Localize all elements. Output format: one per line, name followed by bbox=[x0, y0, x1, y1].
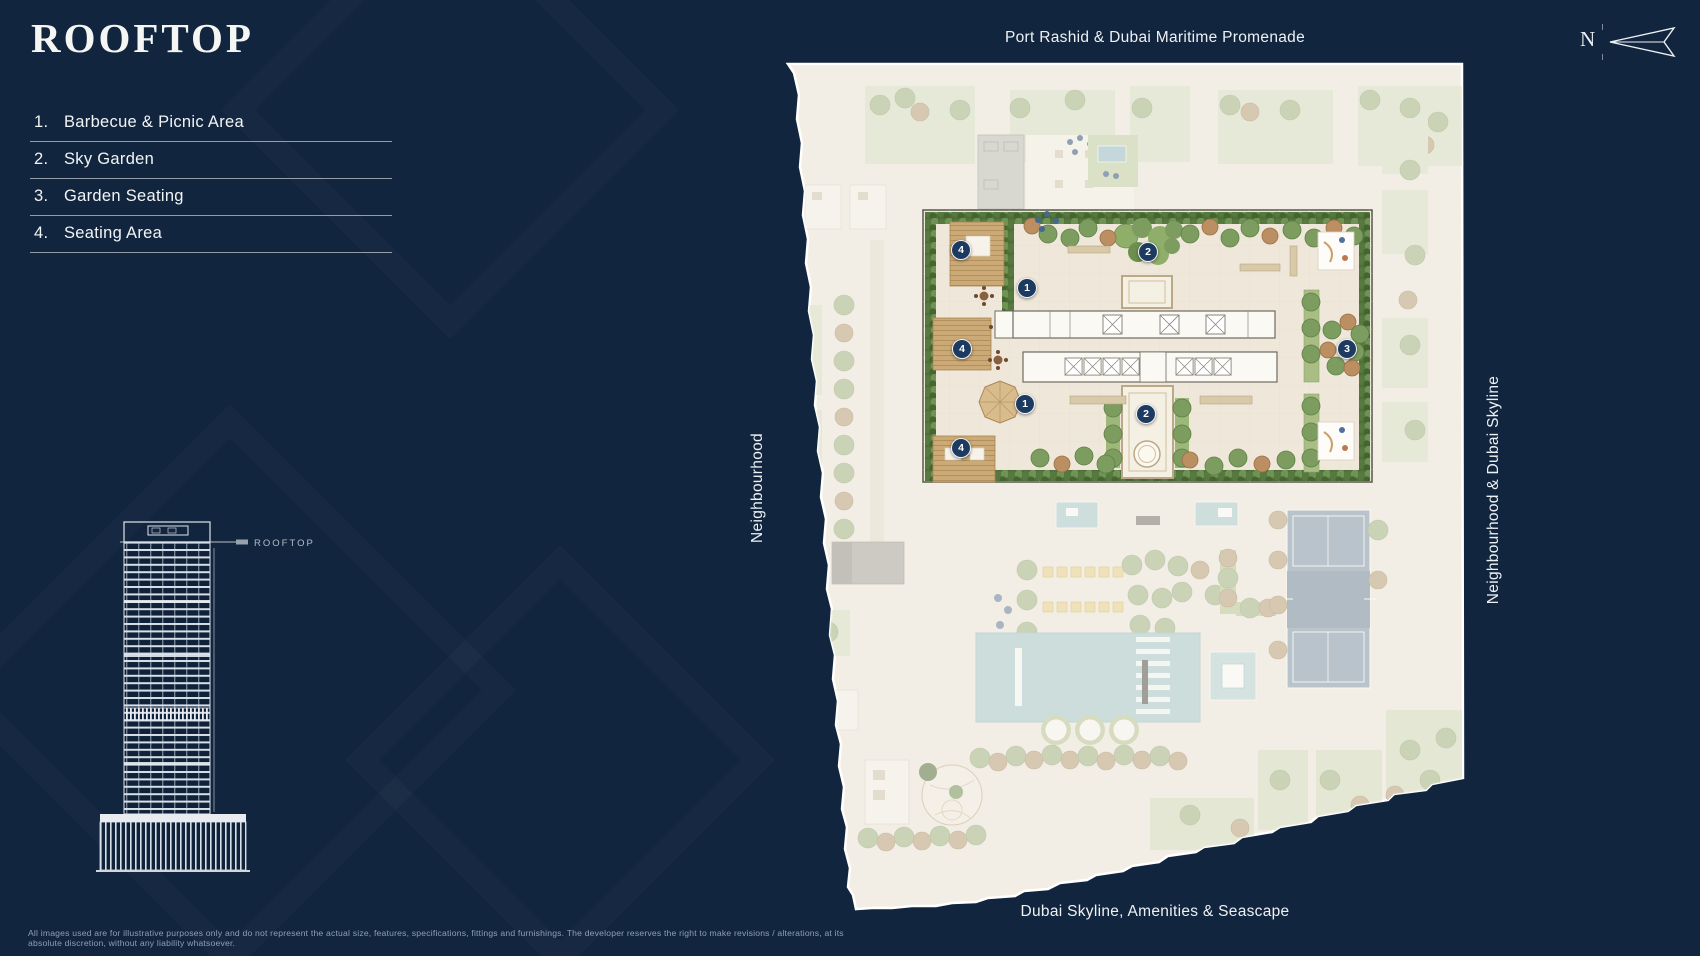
map-label-top: Port Rashid & Dubai Maritime Promenade bbox=[1005, 29, 1305, 47]
legend-label: Barbecue & Picnic Area bbox=[64, 113, 244, 132]
plan-marker-2: 2 bbox=[1136, 404, 1156, 424]
rooftop-callout: ROOFTOP bbox=[254, 538, 315, 549]
legend-number: 2. bbox=[34, 150, 62, 169]
plan-marker-1: 1 bbox=[1017, 278, 1037, 298]
map-label-left: Neighbourhood bbox=[749, 433, 767, 543]
plan-marker-2: 2 bbox=[1138, 242, 1158, 262]
legend-item-4: 4. Seating Area bbox=[30, 216, 392, 253]
page-title: ROOFTOP bbox=[31, 14, 254, 62]
plan-marker-4: 4 bbox=[952, 339, 972, 359]
compass: N bbox=[1580, 22, 1680, 62]
plan-marker-1: 1 bbox=[1015, 394, 1035, 414]
plan-marker-4: 4 bbox=[951, 438, 971, 458]
plan-marker-4: 4 bbox=[951, 240, 971, 260]
legend-number: 1. bbox=[34, 113, 62, 132]
legend-list: 1. Barbecue & Picnic Area 2. Sky Garden … bbox=[30, 105, 392, 253]
site-plan-illustration bbox=[770, 50, 1480, 920]
legend-number: 3. bbox=[34, 187, 62, 206]
legend-number: 4. bbox=[34, 224, 62, 243]
legend-item-2: 2. Sky Garden bbox=[30, 142, 392, 179]
legend-label: Garden Seating bbox=[64, 187, 184, 206]
north-arrow-icon bbox=[1602, 22, 1680, 62]
legend-label: Sky Garden bbox=[64, 150, 154, 169]
plan-marker-3: 3 bbox=[1337, 339, 1357, 359]
legend-item-1: 1. Barbecue & Picnic Area bbox=[30, 105, 392, 142]
legend-item-3: 3. Garden Seating bbox=[30, 179, 392, 216]
disclaimer-text: All images used are for illustrative pur… bbox=[28, 928, 878, 948]
compass-north-letter: N bbox=[1580, 27, 1595, 52]
legend-label: Seating Area bbox=[64, 224, 162, 243]
building-elevation: ROOFTOP bbox=[90, 512, 340, 880]
brochure-page: ROOFTOP 1. Barbecue & Picnic Area 2. Sky… bbox=[0, 0, 1700, 956]
map-label-bottom: Dubai Skyline, Amenities & Seascape bbox=[1021, 903, 1290, 921]
map-label-right: Neighbourhood & Dubai Skyline bbox=[1485, 376, 1503, 604]
sports-courts bbox=[1269, 510, 1388, 688]
top-lawns bbox=[865, 86, 1462, 166]
